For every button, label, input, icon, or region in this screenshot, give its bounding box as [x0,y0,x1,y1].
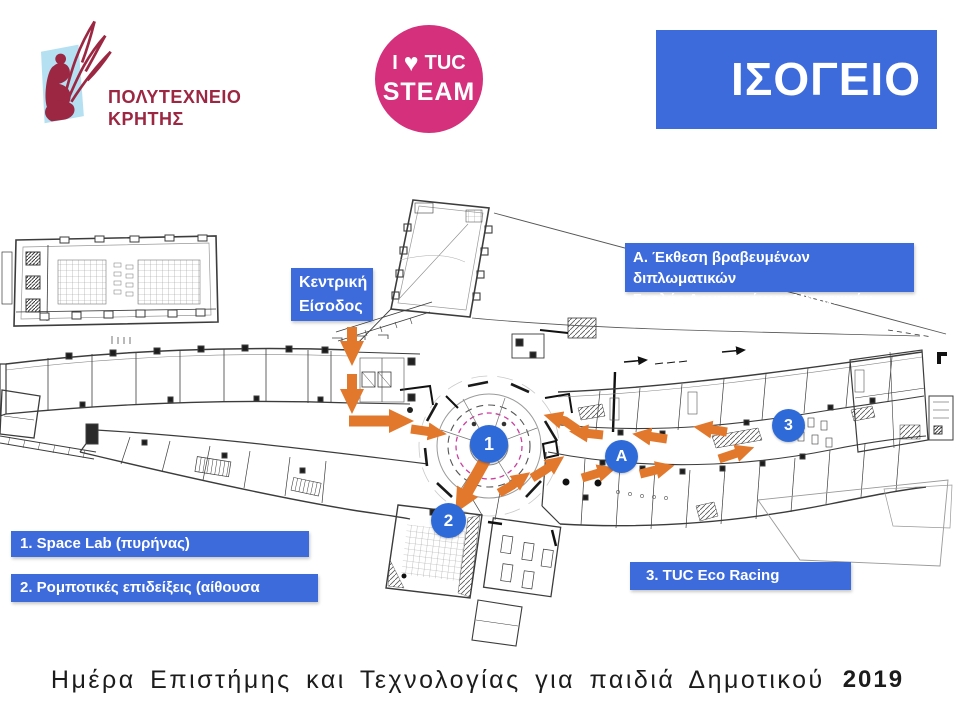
entrance-line2: Είσοδος [299,295,373,319]
legend-robotics: 2. Ρομποτικές επιδείξεις (αίθουσα ισογεί… [11,574,318,602]
institution-line1: ΠΟΛΥΤΕΧΝΕΙΟ [108,86,241,108]
right-wing [542,350,953,566]
heart-icon: ♥ [404,53,419,73]
institution-name: ΠΟΛΥΤΕΧΝΕΙΟ ΚΡΗΤΗΣ [108,86,241,130]
badge-word-i: I [392,52,398,75]
legend-a-line1: Α. Έκθεση βραβευμένων διπλωματικών [633,247,914,289]
tuc-logo-emblem [16,6,116,144]
left-wing [0,335,428,519]
slide: ΠΟΛΥΤΕΧΝΕΙΟ ΚΡΗΤΗΣ I ♥ TUC STEAM ΙΣΟΓΕΙΟ… [0,0,955,720]
map-marker-a: A [605,440,638,473]
entrance-label: Κεντρική Είσοδος [291,268,373,321]
institution-line2: ΚΡΗΤΗΣ [108,108,241,130]
legend-space-lab: 1. Space Lab (πυρήνας) [11,531,309,557]
lower-rooms [386,492,561,646]
tuc-logo: ΠΟΛΥΤΕΧΝΕΙΟ ΚΡΗΤΗΣ [16,6,276,148]
event-year: 2019 [843,666,904,694]
auditorium-building [2,235,218,326]
event-caption-text: Ημέρα Επιστήμης και Τεχνολογίας για παιδ… [51,666,825,695]
legend-architecture-exhibit: Α. Έκθεση βραβευμένων διπλωματικών Σχολή… [625,243,914,292]
event-caption: Ημέρα Επιστήμης και Τεχνολογίας για παιδ… [0,655,955,705]
entrance-line1: Κεντρική [299,271,373,295]
map-marker-1: 1 [470,425,508,463]
steam-badge: I ♥ TUC STEAM [375,25,483,133]
badge-top-line: I ♥ TUC [392,52,466,75]
badge-steam-label: STEAM [383,78,476,107]
legend-a-line2: Σχολής Αρχιτεκτόνων Μηχανικών [633,289,914,310]
legend-eco-racing: 3. TUC Eco Racing [630,562,851,590]
badge-word-tuc: TUC [425,52,466,75]
map-marker-3: 3 [772,409,805,442]
page-title: ΙΣΟΓΕΙΟ [656,30,937,129]
map-marker-2: 2 [431,503,466,538]
